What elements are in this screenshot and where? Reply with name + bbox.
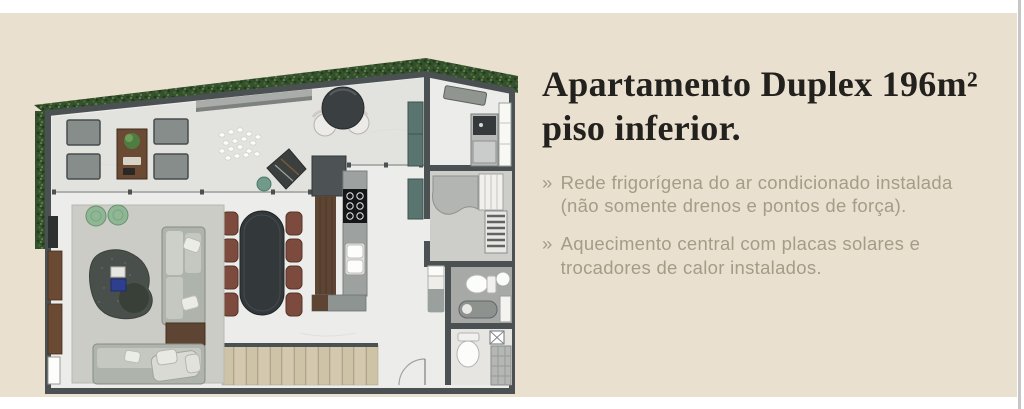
feature-text: Aquecimento central com placas solares e… xyxy=(561,232,921,279)
toilet-icon xyxy=(457,341,479,367)
door-marker xyxy=(48,357,60,384)
tv-unit xyxy=(48,216,58,248)
text-column: Apartamento Duplex 196m² piso inferior. … xyxy=(542,63,1022,279)
living-room xyxy=(48,205,224,384)
guillemet-bullet-icon: » xyxy=(542,232,553,255)
daybed xyxy=(428,266,444,312)
lower-bathroom xyxy=(451,329,512,385)
upper-bathroom xyxy=(451,267,512,323)
slide: Apartamento Duplex 196m² piso inferior. … xyxy=(0,0,1024,409)
page-title: Apartamento Duplex 196m² piso inferior. xyxy=(542,63,1022,151)
blue-book xyxy=(111,279,126,291)
floor-plan-svg xyxy=(30,23,522,409)
toilet-icon xyxy=(466,275,488,293)
window-edge-line xyxy=(1018,0,1021,409)
teal-cabinets xyxy=(408,102,423,219)
beige-panel: Apartamento Duplex 196m² piso inferior. … xyxy=(0,13,1017,397)
feature-item: » Rede frigorígena do ar condicionado in… xyxy=(542,171,1022,218)
wood-stairs xyxy=(222,343,378,385)
feature-text: Rede frigorígena do ar condicionado inst… xyxy=(561,171,953,218)
feature-list: » Rede frigorígena do ar condicionado in… xyxy=(542,171,1022,279)
vanity-room-shelves xyxy=(430,171,512,261)
feature-item: » Aquecimento central com placas solares… xyxy=(542,232,1022,279)
guillemet-bullet-icon: » xyxy=(542,171,553,194)
sink-icon xyxy=(496,272,510,286)
floor-plan xyxy=(30,23,522,409)
